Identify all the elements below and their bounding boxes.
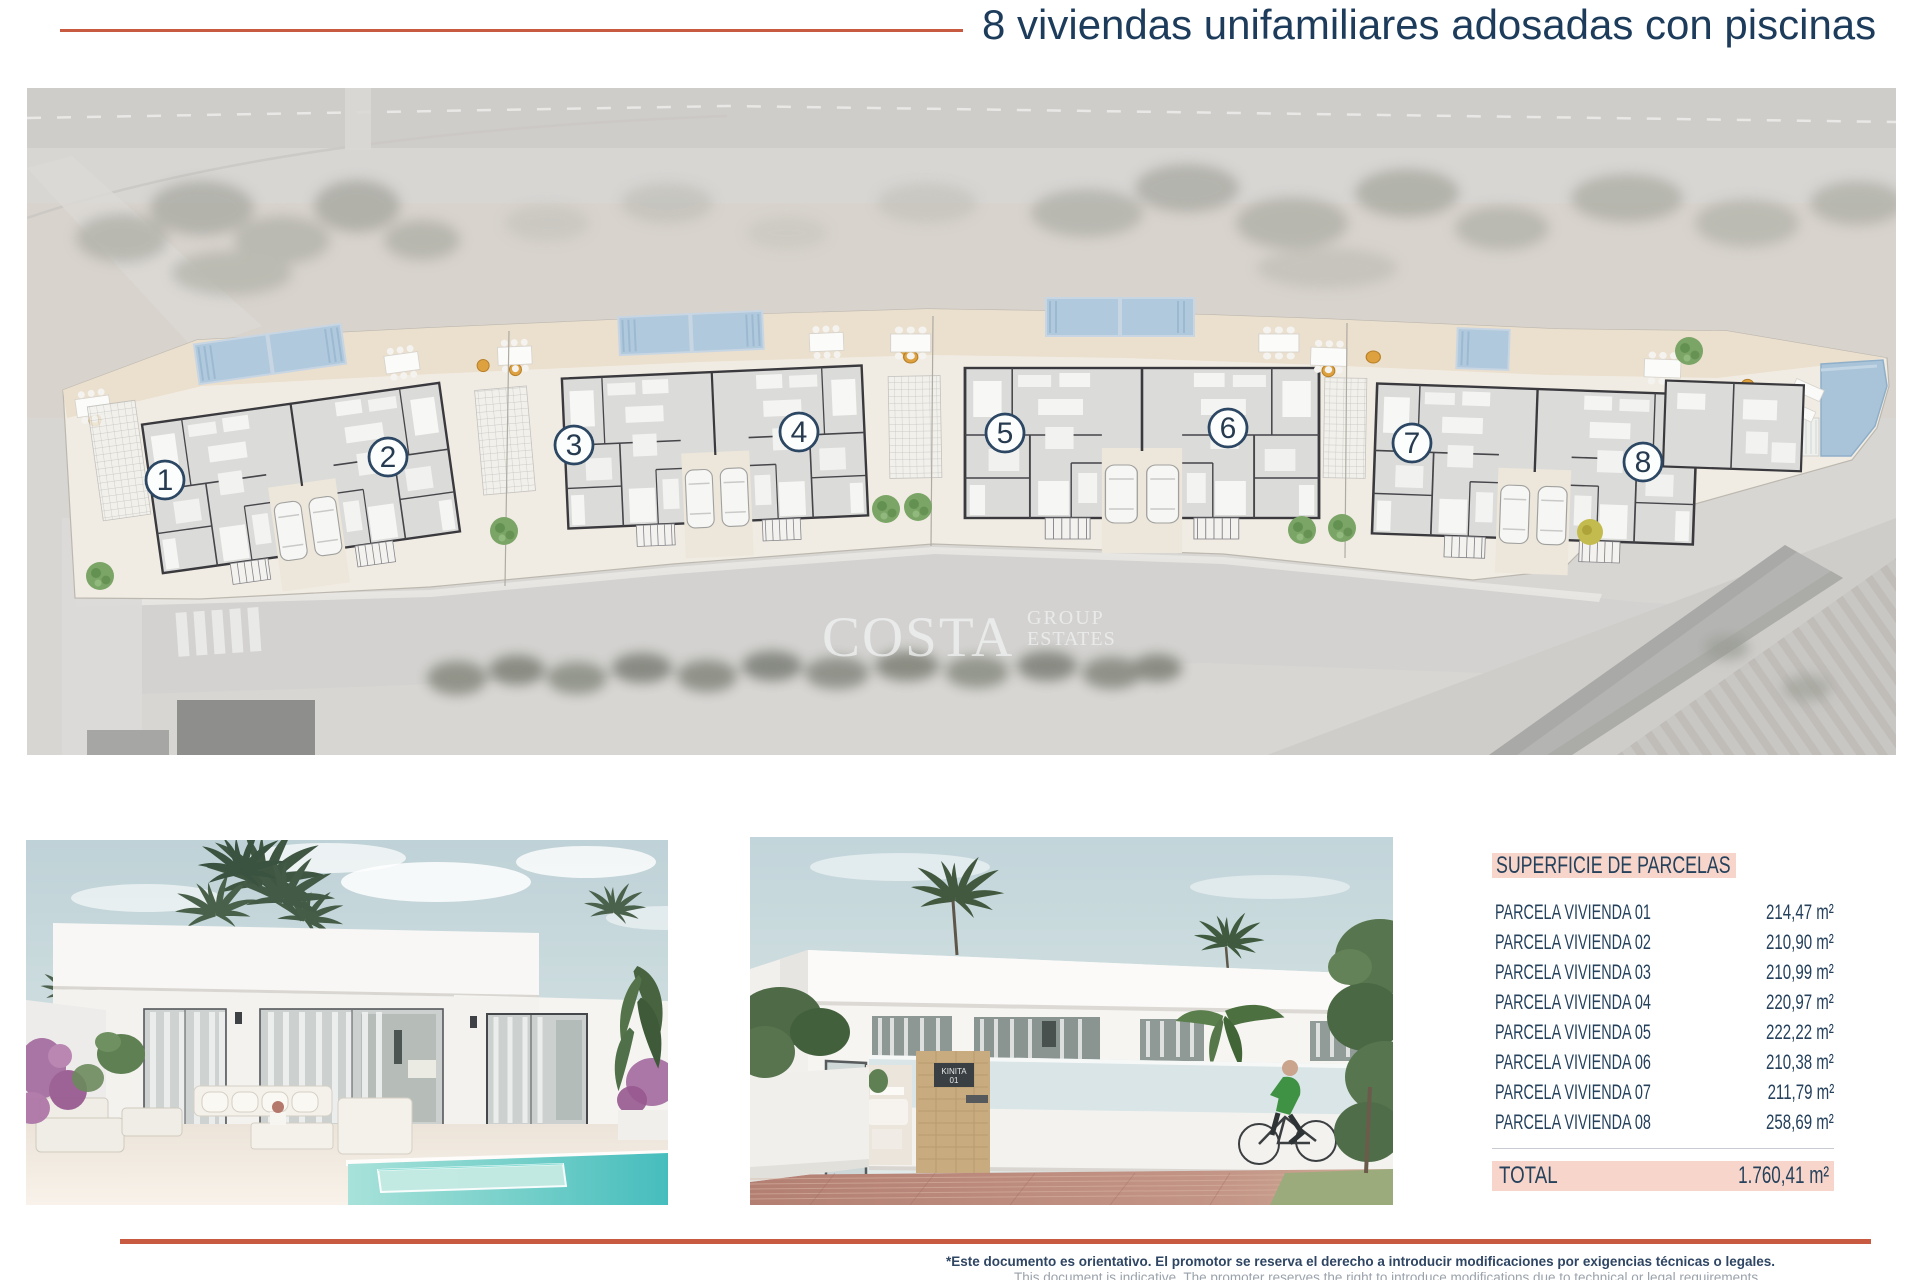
svg-text:ESTATES: ESTATES [1027, 628, 1116, 650]
svg-text:4: 4 [791, 416, 808, 449]
svg-text:01: 01 [950, 1076, 959, 1085]
svg-text:7: 7 [1404, 427, 1421, 460]
svg-text:2: 2 [380, 441, 397, 474]
svg-text:KINITA: KINITA [941, 1067, 967, 1076]
svg-text:6: 6 [1220, 412, 1237, 445]
svg-text:1: 1 [157, 464, 174, 497]
svg-text:GROUP: GROUP [1027, 607, 1105, 629]
svg-text:3: 3 [566, 429, 583, 462]
svg-text:5: 5 [997, 417, 1014, 450]
svg-text:8: 8 [1635, 446, 1652, 479]
svg-text:COSTA: COSTA [822, 606, 1014, 669]
